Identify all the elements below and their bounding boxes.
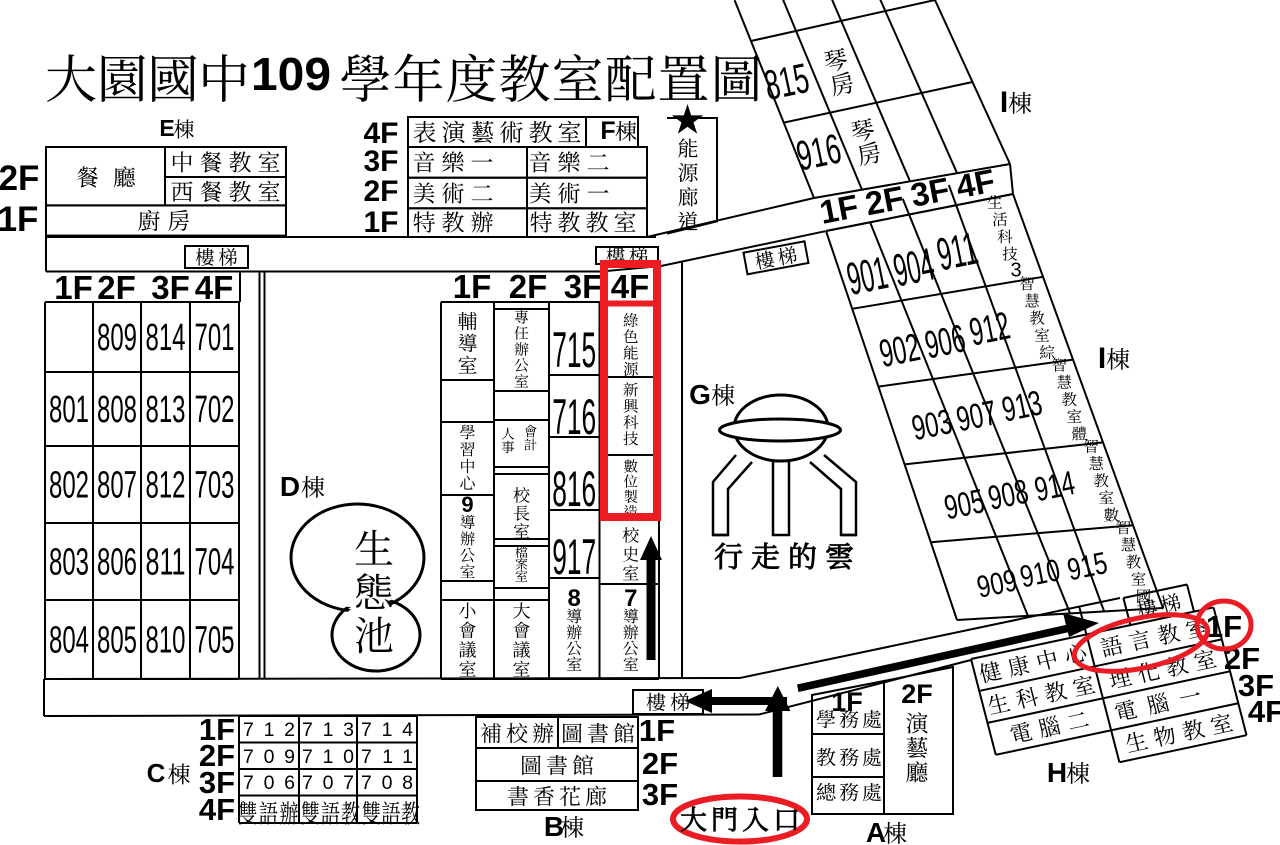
svg-text:109: 109 [251,48,331,100]
svg-text:816: 816 [552,461,596,517]
svg-text:H: H [1047,757,1067,788]
svg-text:D: D [280,471,300,502]
svg-text:811: 811 [146,542,186,584]
svg-text:1F: 1F [639,713,675,748]
svg-text:2F: 2F [509,268,548,305]
svg-text:9: 9 [461,492,473,517]
svg-text:2F: 2F [862,179,907,223]
svg-text:711: 711 [361,746,413,768]
svg-text:908: 908 [985,473,1032,518]
svg-text:4F: 4F [1248,694,1280,729]
svg-text:2F: 2F [642,746,678,781]
svg-text:1F: 1F [363,206,398,239]
svg-text:2F: 2F [363,175,398,208]
svg-text:3F: 3F [363,145,398,178]
svg-text:C: C [147,758,166,788]
svg-text:903: 903 [908,402,955,448]
svg-text:905: 905 [941,482,988,527]
svg-text:3F: 3F [908,170,953,214]
svg-text:914: 914 [1031,464,1078,509]
svg-text:713: 713 [302,719,354,741]
svg-text:3F: 3F [564,268,603,305]
svg-text:1F: 1F [1206,609,1242,644]
svg-text:917: 917 [552,529,596,585]
svg-text:803: 803 [49,542,89,584]
svg-text:714: 714 [361,719,413,741]
svg-text:707: 707 [302,772,354,794]
svg-text:710: 710 [302,746,354,768]
svg-text:807: 807 [97,465,137,507]
svg-text:801: 801 [49,389,89,431]
svg-text:808: 808 [97,389,137,431]
svg-text:806: 806 [97,542,137,584]
svg-text:812: 812 [146,465,186,507]
svg-text:907: 907 [953,393,1000,439]
svg-text:1F: 1F [0,200,38,239]
svg-text:1F: 1F [831,687,863,717]
svg-text:716: 716 [552,389,596,445]
svg-text:810: 810 [146,620,186,662]
svg-text:F: F [600,117,615,145]
svg-text:712: 712 [243,719,295,741]
svg-text:3F: 3F [151,269,190,306]
svg-text:1F: 1F [817,187,862,231]
svg-text:706: 706 [243,772,295,794]
svg-text:E: E [159,115,174,141]
svg-text:709: 709 [243,746,295,768]
svg-text:913: 913 [999,383,1046,429]
svg-text:2F: 2F [901,679,933,709]
svg-text:804: 804 [49,620,89,662]
svg-text:B: B [544,811,564,842]
svg-text:4F: 4F [611,268,650,305]
svg-text:8: 8 [568,585,581,612]
svg-text:708: 708 [361,772,413,794]
svg-text:705: 705 [195,620,235,662]
svg-text:7: 7 [624,585,637,612]
svg-text:1F: 1F [453,268,492,305]
svg-text:906: 906 [921,317,969,367]
svg-text:702: 702 [195,389,235,431]
svg-text:2F: 2F [0,159,39,198]
svg-text:912: 912 [966,304,1014,354]
svg-text:703: 703 [195,465,235,507]
svg-text:704: 704 [195,542,235,584]
svg-text:I: I [1000,86,1008,119]
svg-text:A: A [866,817,886,845]
svg-text:4F: 4F [199,792,235,827]
svg-text:3: 3 [1010,259,1021,281]
svg-text:805: 805 [97,620,137,662]
svg-text:4F: 4F [195,269,234,306]
svg-text:813: 813 [146,389,186,431]
svg-text:G: G [689,379,711,410]
svg-text:902: 902 [876,326,924,376]
svg-text:701: 701 [195,317,235,359]
svg-text:1F: 1F [54,269,93,306]
svg-text:2F: 2F [97,269,136,306]
svg-text:715: 715 [552,322,596,378]
svg-text:I: I [1098,342,1106,375]
svg-text:802: 802 [49,465,89,507]
svg-text:814: 814 [146,317,186,359]
svg-text:3F: 3F [642,777,678,812]
svg-text:809: 809 [97,317,137,359]
